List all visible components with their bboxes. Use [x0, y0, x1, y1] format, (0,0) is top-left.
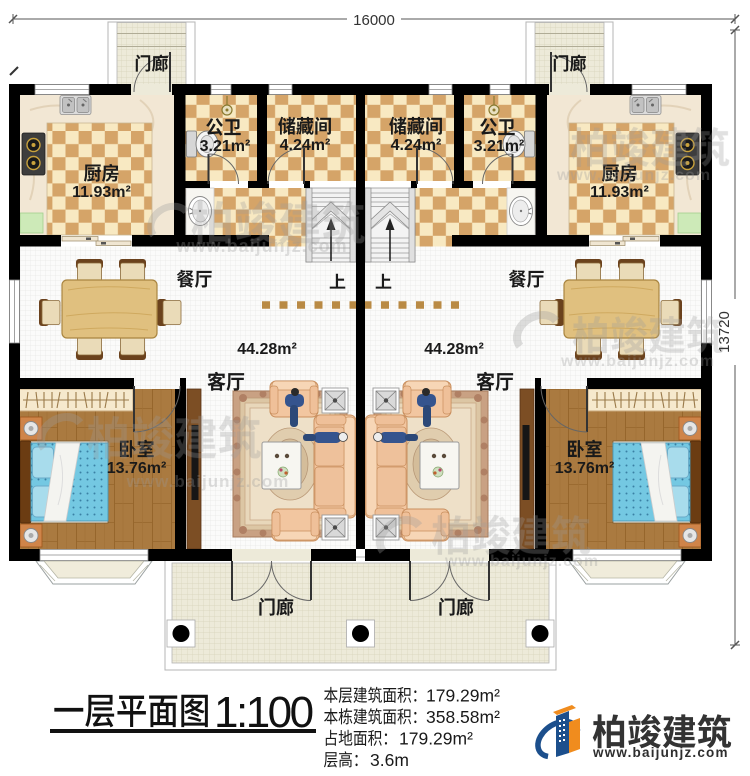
- svg-text:16000: 16000: [353, 12, 395, 29]
- svg-text:www.baijunjz.com: www.baijunjz.com: [126, 472, 290, 491]
- svg-text:13720: 13720: [716, 311, 733, 353]
- svg-text:44.28m²: 44.28m²: [237, 341, 297, 358]
- svg-text:11.93m²: 11.93m²: [72, 184, 131, 201]
- svg-text:179.29m²: 179.29m²: [399, 729, 473, 749]
- svg-text:www.baijunjz.com: www.baijunjz.com: [560, 353, 715, 370]
- svg-text:44.28m²: 44.28m²: [424, 341, 484, 358]
- svg-text:4.24m²: 4.24m²: [280, 137, 331, 154]
- svg-text:11.93m²: 11.93m²: [590, 184, 649, 201]
- svg-text:3.6m: 3.6m: [370, 750, 409, 770]
- svg-text:www.baijunjz.com: www.baijunjz.com: [592, 745, 729, 760]
- svg-text:3.21m²: 3.21m²: [200, 138, 251, 155]
- svg-text:www.baijunjz.com: www.baijunjz.com: [444, 553, 599, 570]
- svg-text:www.baijunjz.com: www.baijunjz.com: [175, 236, 347, 256]
- svg-text:358.58m²: 358.58m²: [426, 707, 500, 727]
- svg-text:www.baijunjz.com: www.baijunjz.com: [556, 167, 711, 184]
- svg-text:3.21m²: 3.21m²: [474, 138, 525, 155]
- svg-text:4.24m²: 4.24m²: [391, 137, 442, 154]
- svg-text:13.76m²: 13.76m²: [555, 460, 615, 477]
- svg-text:179.29m²: 179.29m²: [426, 686, 500, 706]
